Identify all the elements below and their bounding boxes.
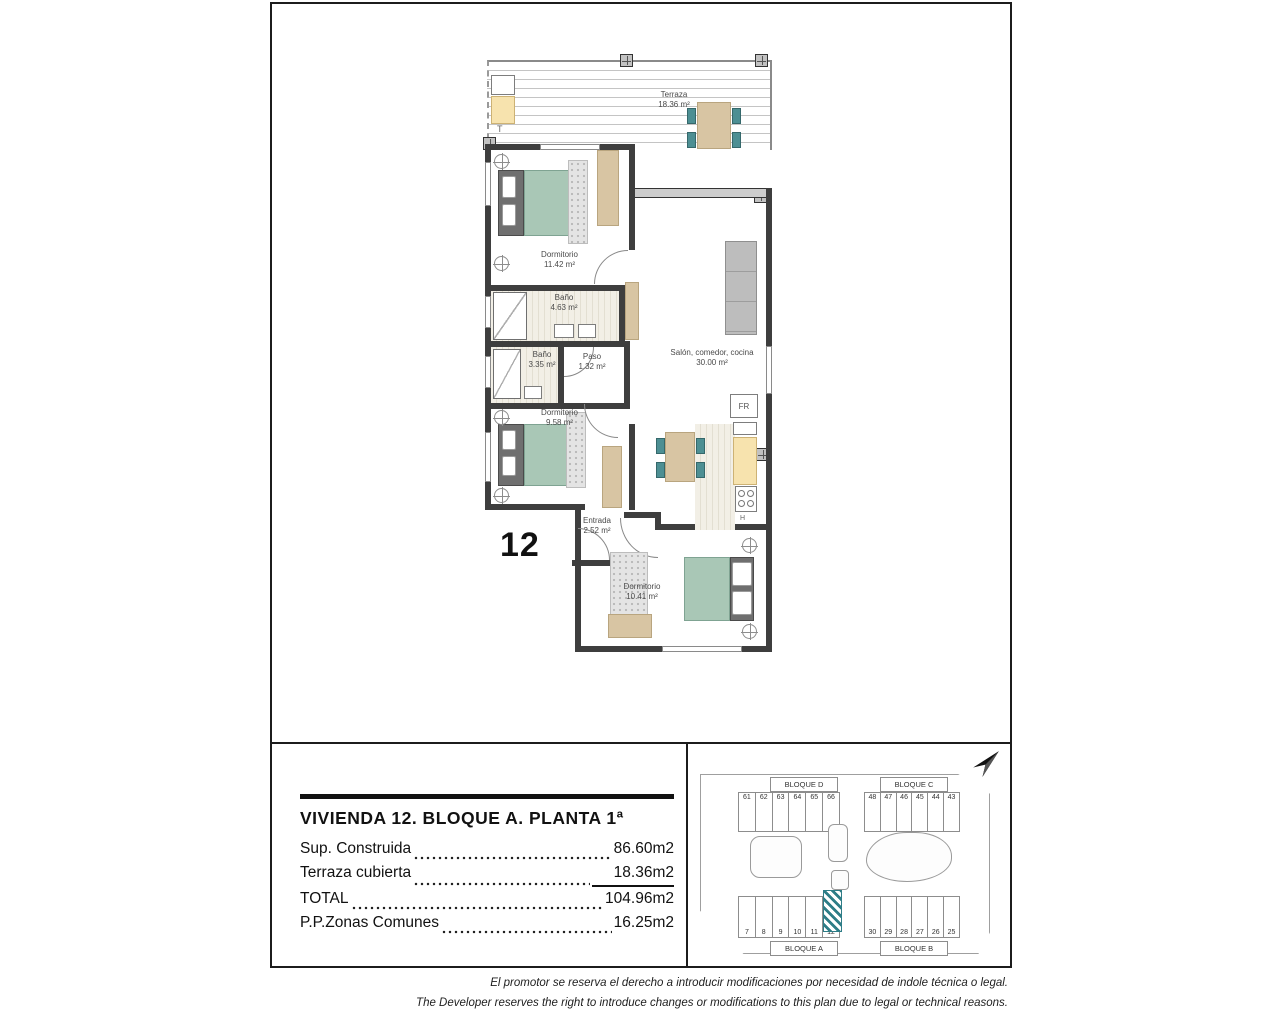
unit-row-bloque-b: 30 29 28 27 26 25 <box>864 896 960 938</box>
terrace-chair <box>732 132 741 148</box>
window <box>485 432 491 482</box>
sink <box>554 324 574 338</box>
ceiling-point-icon <box>494 154 509 169</box>
ceiling-point-icon <box>494 410 509 425</box>
block-label-b: BLOQUE B <box>880 941 948 956</box>
pillow <box>732 562 752 586</box>
bed <box>524 170 570 236</box>
terrace-area: T Terraza 18.36 m² <box>487 60 772 150</box>
unit-cell: 25 <box>943 897 959 937</box>
shower <box>493 292 527 340</box>
ceiling-point-icon <box>494 488 509 503</box>
pool <box>750 836 802 878</box>
unit-cell: 63 <box>772 793 789 831</box>
summary-row-label: Sup. Construida <box>300 837 411 861</box>
wall <box>485 504 585 510</box>
unit-cell: 48 <box>865 793 880 831</box>
burner-icon <box>738 500 745 507</box>
fridge-label: FR <box>739 402 750 411</box>
burner-icon <box>747 490 754 497</box>
dot-leader <box>441 929 612 935</box>
unit-cell: 26 <box>927 897 943 937</box>
washer-box <box>491 75 515 95</box>
unit-cell: 44 <box>927 793 943 831</box>
room-label-salon: Salón, comedor, cocina 30.00 m² <box>652 348 772 369</box>
north-arrow-icon <box>972 750 1000 778</box>
disclaimer-es: El promotor se reserva el derecho a intr… <box>416 974 1008 994</box>
terrace-chair <box>687 132 696 148</box>
block-label-d: BLOQUE D <box>770 777 838 792</box>
terrace-marker: T <box>497 124 503 134</box>
unit-cell: 64 <box>788 793 805 831</box>
room-label-dormitorio-3: Dormitorio 10.41 m² <box>602 582 682 603</box>
pool-building <box>831 870 849 890</box>
unit-cell: 10 <box>788 897 805 937</box>
room-label-bano-1: Baño 4.63 m² <box>524 293 604 314</box>
pillow <box>732 591 752 615</box>
unit-cell: 8 <box>755 897 772 937</box>
summary-row: Terraza cubierta 18.36m2 <box>300 861 674 887</box>
dot-leader <box>413 855 612 861</box>
title-rule <box>300 794 674 799</box>
bed <box>684 557 730 621</box>
unit-cell: 11 <box>805 897 822 937</box>
hob <box>735 486 757 512</box>
ceiling-point-icon <box>494 256 509 271</box>
unit-cell: 62 <box>755 793 772 831</box>
bed <box>524 424 568 486</box>
dining-chair <box>696 462 705 478</box>
block-label-a: BLOQUE A <box>770 941 838 956</box>
pillow <box>502 430 516 450</box>
block-label-c: BLOQUE C <box>880 777 948 792</box>
kitchen-sink <box>733 422 757 435</box>
pillow <box>502 204 516 226</box>
unit-cell: 61 <box>739 793 755 831</box>
unit-cell: 45 <box>911 793 927 831</box>
summary-row-label: Terraza cubierta <box>300 861 411 885</box>
sofa <box>725 241 757 335</box>
dining-chair <box>696 438 705 454</box>
wall <box>766 188 772 652</box>
kitchen-counter <box>733 437 757 485</box>
unit-row-bloque-c: 48 47 46 45 44 43 <box>864 792 960 832</box>
unit-cell: 27 <box>911 897 927 937</box>
pillow <box>502 176 516 198</box>
ceiling-point-icon <box>742 538 757 553</box>
highlighted-unit-overlay <box>823 890 842 932</box>
unit-cell: 28 <box>896 897 912 937</box>
unit-number: 12 <box>500 526 540 565</box>
wardrobe <box>602 446 622 508</box>
pool-building <box>828 824 848 862</box>
unit-cell: 9 <box>772 897 789 937</box>
terrace-chair <box>687 108 696 124</box>
window <box>485 162 491 206</box>
site-plan-panel: BLOQUE D BLOQUE C 61 62 63 64 65 66 48 4… <box>686 742 1012 968</box>
window <box>662 646 742 652</box>
room-label-paso: Paso 1.32 m² <box>567 352 617 373</box>
floor-plan-sheet: T Terraza 18.36 m² <box>0 0 1280 1024</box>
summary-row-value: 86.60m2 <box>614 837 674 861</box>
summary-row: Sup. Construida 86.60m2 <box>300 837 674 861</box>
summary-panel: VIVIENDA 12. BLOQUE A. PLANTA 1ª Sup. Co… <box>270 742 690 968</box>
dot-leader <box>413 881 590 887</box>
dining-chair <box>656 462 665 478</box>
ceiling-point-icon <box>742 624 757 639</box>
unit-cell: 43 <box>943 793 959 831</box>
unit-row-bloque-d: 61 62 63 64 65 66 <box>738 792 840 832</box>
toilet <box>524 386 542 399</box>
pool <box>866 832 952 882</box>
pillow <box>502 456 516 476</box>
tall-unit <box>625 282 639 340</box>
terrace-cabinet <box>491 96 515 124</box>
dining-chair <box>656 438 665 454</box>
summary-row-value: 104.96m2 <box>605 887 674 911</box>
summary-title: VIVIENDA 12. BLOQUE A. PLANTA 1ª <box>300 808 674 829</box>
wardrobe <box>608 614 652 638</box>
wall <box>629 424 635 510</box>
fridge: FR <box>730 394 758 418</box>
window <box>540 144 600 150</box>
unit-cell: 47 <box>880 793 896 831</box>
disclaimer-en: The Developer reserves the right to intr… <box>416 994 1008 1014</box>
pillar <box>755 54 768 67</box>
hob-marker: H <box>740 515 745 522</box>
room-label-bano-2: Baño 3.35 m² <box>512 350 572 371</box>
burner-icon <box>738 490 745 497</box>
wardrobe <box>597 150 619 226</box>
plan-frame: T Terraza 18.36 m² <box>270 2 1012 744</box>
dining-table <box>665 432 695 482</box>
room-label-dormitorio-1: Dormitorio 11.42 m² <box>517 250 602 271</box>
summary-row-label: P.P.Zonas Comunes <box>300 911 439 935</box>
rug <box>568 160 588 244</box>
disclaimer: El promotor se reserva el derecho a intr… <box>416 974 1008 1013</box>
wall <box>629 144 635 250</box>
summary-row: P.P.Zonas Comunes 16.25m2 <box>300 911 674 935</box>
summary-row-value: 18.36m2 <box>592 861 674 887</box>
summary-row-label: TOTAL <box>300 887 349 911</box>
room-label-entrada: Entrada 2.52 m² <box>562 516 632 537</box>
room-label-dormitorio-2: Dormitorio 9.58 m² <box>517 408 602 429</box>
unit-cell: 30 <box>865 897 880 937</box>
unit-cell: 29 <box>880 897 896 937</box>
summary-row: TOTAL 104.96m2 <box>300 887 674 911</box>
terrace-table <box>697 102 731 149</box>
burner-icon <box>747 500 754 507</box>
pillar <box>620 54 633 67</box>
unit-cell: 46 <box>896 793 912 831</box>
toilet <box>578 324 596 338</box>
wall <box>624 341 630 409</box>
terrace-chair <box>732 108 741 124</box>
summary-row-value: 16.25m2 <box>614 911 674 935</box>
unit-cell: 65 <box>805 793 822 831</box>
sliding-glass-door <box>629 188 768 198</box>
unit-cell: 7 <box>739 897 755 937</box>
